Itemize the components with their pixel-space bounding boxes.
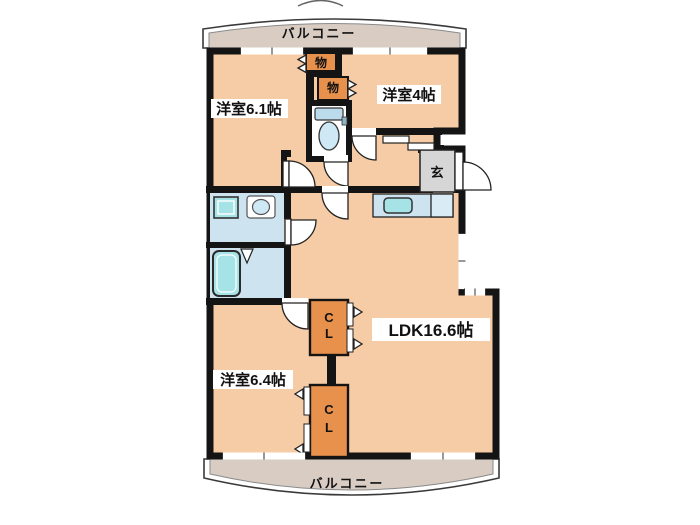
closet-upper-label-c: C	[324, 310, 334, 325]
wall-washroom-right-lower	[284, 244, 291, 305]
room64-label: 洋室6.4帖	[220, 371, 286, 389]
room61-door-leaf	[283, 161, 289, 187]
washroom-door-leaf	[285, 219, 291, 245]
entry-door-leaf	[455, 152, 463, 190]
ldk-label: LDK16.6帖	[388, 320, 473, 340]
vanity-basin	[253, 200, 270, 215]
toilet-bowl	[319, 122, 339, 150]
window-step-wall	[464, 289, 486, 296]
toilet-handle	[342, 117, 347, 125]
closet-lower-door-strip2	[304, 424, 310, 452]
room4-label: 洋室4帖	[382, 86, 435, 104]
window-bottom-right	[410, 453, 476, 460]
wall-room64-top	[206, 298, 282, 305]
closet-lower-label-c: C	[324, 402, 334, 417]
window-top-left	[240, 48, 304, 55]
window-bottom-left	[222, 453, 306, 460]
room4-door-gap	[352, 128, 376, 136]
wall-closet-mid	[327, 353, 336, 387]
closet-upper-door-strip2	[347, 329, 353, 352]
wall-wash-bath-divider	[206, 242, 291, 248]
window-right-wall	[459, 233, 466, 290]
closet-lower-door-strip1	[304, 387, 310, 415]
balcony-top-label: バルコニー	[282, 26, 357, 41]
balcony-top: バルコニー	[203, 19, 466, 48]
toilet-tank	[315, 108, 343, 120]
storage-top-label: 物	[315, 55, 327, 70]
room61-label: 洋室6.1帖	[216, 100, 282, 118]
window-top-right	[352, 48, 428, 55]
kitchen-sink	[384, 198, 412, 213]
balcony-bottom-label: バルコニー	[310, 476, 385, 491]
room4-sliding-panel-1	[383, 136, 409, 143]
room4-sliding-panel-2	[408, 143, 434, 150]
floor-plan: バルコニー バルコニー	[0, 0, 700, 525]
wall-room4-bottom	[376, 128, 442, 135]
kitchen-counter-right	[431, 194, 453, 217]
storage-mid-label: 物	[327, 80, 339, 95]
closet-upper-label-l: L	[325, 326, 333, 341]
closet-lower-label-l: L	[325, 420, 333, 435]
wall-washroom-right-upper	[284, 193, 291, 219]
genkan-label: 玄	[430, 165, 443, 180]
closet-upper-door-strip1	[347, 303, 353, 326]
